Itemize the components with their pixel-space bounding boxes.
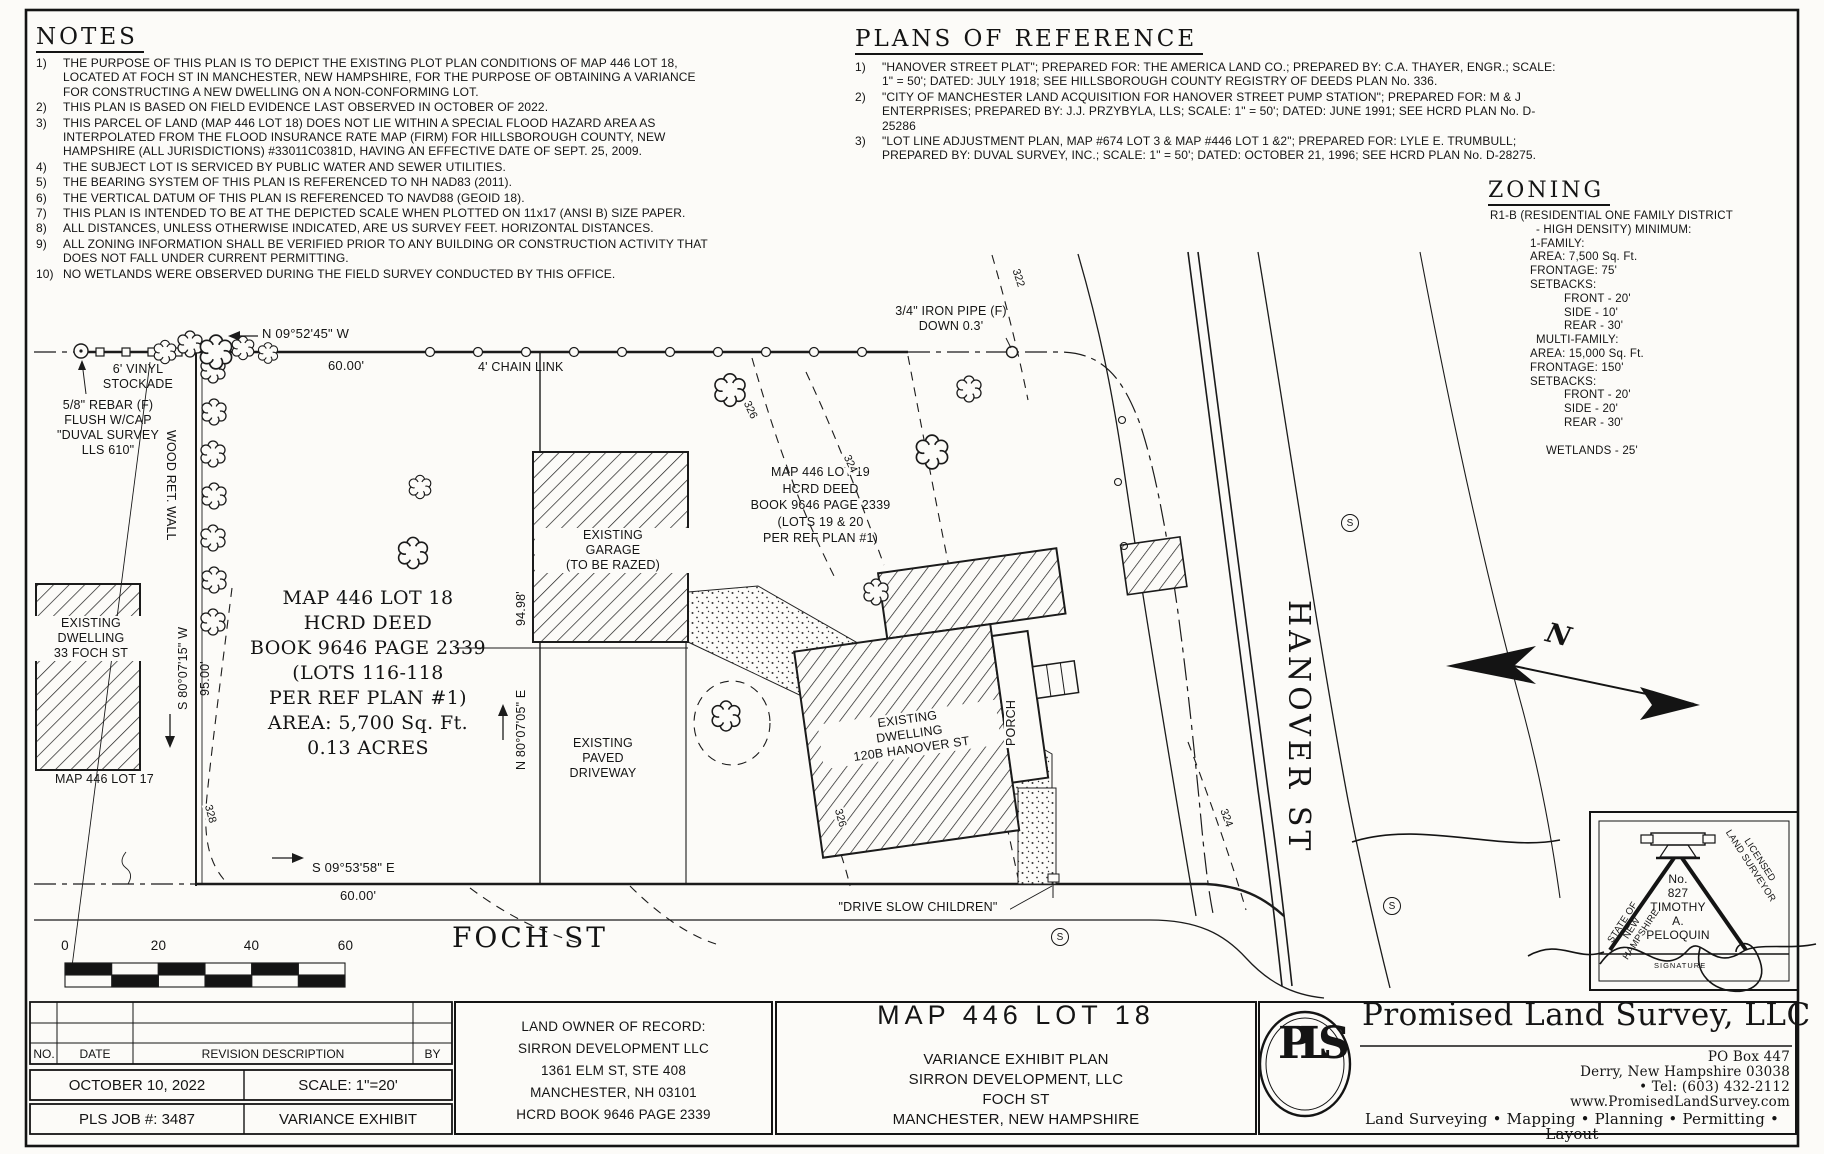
bearing-top-label: N 09°52'45" W — [262, 326, 349, 341]
notes-heading: NOTES — [36, 24, 144, 53]
zoning-wetlands: WETLANDS - 25' — [1546, 445, 1820, 459]
plan-scale: SCALE: 1"=20' — [244, 1077, 452, 1094]
distance-right-label: 94.98' — [514, 589, 529, 628]
lot18-label: MAP 446 LOT 18 HCRD DEED BOOK 9646 PAGE … — [243, 586, 493, 761]
bearing-right-label: N 80°07'05" E — [514, 688, 529, 772]
note-item: 8)ALL DISTANCES, UNLESS OTHERWISE INDICA… — [36, 221, 712, 235]
distance-left-label: 95.00' — [198, 661, 213, 696]
zoning-line: SIDE - 10' — [1564, 307, 1820, 321]
note-item: 7)THIS PLAN IS INTENDED TO BE AT THE DEP… — [36, 206, 712, 220]
zoning-list: R1-B (RESIDENTIAL ONE FAMILY DISTRICT - … — [1490, 210, 1820, 459]
revision-col-no: NO. — [31, 1047, 57, 1061]
lot17-label: MAP 446 LOT 17 — [55, 772, 154, 787]
scale-tick: 20 — [146, 938, 171, 953]
plans-of-reference-list: 1)"HANOVER STREET PLAT"; PREPARED FOR: T… — [855, 60, 1557, 164]
bearing-bottom-label: S 09°53'58" E — [310, 860, 397, 875]
zoning-line: R1-B (RESIDENTIAL ONE FAMILY DISTRICT — [1490, 210, 1820, 224]
plan-type: VARIANCE EXHIBIT — [244, 1111, 452, 1128]
note-item: 3)THIS PARCEL OF LAND (MAP 446 LOT 18) D… — [36, 116, 712, 159]
zoning-heading: ZONING — [1488, 178, 1610, 206]
garage-label: EXISTING GARAGE (TO BE RAZED) — [535, 528, 691, 573]
revision-col-description: REVISION DESCRIPTION — [133, 1047, 413, 1061]
note-item: 1)THE PURPOSE OF THIS PLAN IS TO DEPICT … — [36, 56, 712, 99]
chain-link-label: 4' CHAIN LINK — [478, 360, 564, 375]
zoning-line: FRONTAGE: 150' — [1530, 362, 1820, 376]
zoning-line: - HIGH DENSITY) MINIMUM: — [1536, 224, 1820, 238]
hanover-st-label: HANOVER ST — [1289, 592, 1308, 862]
survey-sheet: NOTES 1)THE PURPOSE OF THIS PLAN IS TO D… — [0, 0, 1824, 1154]
note-item: 5)THE BEARING SYSTEM OF THIS PLAN IS REF… — [36, 175, 712, 189]
distance-top-label: 60.00' — [328, 358, 364, 373]
land-owner-block: LAND OWNER OF RECORD: SIRRON DEVELOPMENT… — [455, 1016, 772, 1126]
plans-of-reference-heading: PLANS OF REFERENCE — [855, 26, 1203, 55]
dwelling33-label: EXISTING DWELLING 33 FOCH ST — [30, 616, 152, 661]
note-item: 2)THIS PLAN IS BASED ON FIELD EVIDENCE L… — [36, 100, 712, 114]
plan-subtitle: VARIANCE EXHIBIT PLAN SIRRON DEVELOPMENT… — [776, 1050, 1256, 1130]
zoning-line: MULTI-FAMILY: — [1536, 334, 1820, 348]
zoning-line: REAR - 30' — [1564, 320, 1820, 334]
firm-name: Promised Land Survey, LLC — [1362, 1008, 1811, 1023]
vinyl-stockade-label: 6' VINYL STOCKADE — [92, 362, 184, 392]
scale-tick: 40 — [239, 938, 264, 953]
zoning-line: REAR - 30' — [1564, 417, 1820, 431]
revision-col-date: DATE — [57, 1047, 133, 1061]
plan-title: MAP 446 LOT 18 — [776, 1008, 1256, 1023]
wood-wall-label: WOOD RET. WALL — [163, 430, 178, 541]
firm-logo: PLS — [1278, 1036, 1338, 1051]
sewer-manhole-icon: S — [1051, 928, 1069, 946]
plan-date: OCTOBER 10, 2022 — [30, 1077, 244, 1094]
zoning-line: SETBACKS: — [1530, 376, 1820, 390]
reference-item: 3)"LOT LINE ADJUSTMENT PLAN, MAP #674 LO… — [855, 134, 1557, 163]
note-item: 9)ALL ZONING INFORMATION SHALL BE VERIFI… — [36, 237, 712, 266]
scale-tick: 60 — [333, 938, 358, 953]
zoning-line: FRONTAGE: 75' — [1530, 265, 1820, 279]
distance-bottom-label: 60.00' — [338, 888, 378, 903]
iron-pipe-label: 3/4" IRON PIPE (F) DOWN 0.3' — [884, 304, 1018, 334]
foch-st-label: FOCH ST — [452, 930, 608, 945]
zoning-line: FRONT - 20' — [1564, 389, 1820, 403]
pls-job-number: PLS JOB #: 3487 — [30, 1111, 244, 1128]
note-item: 6)THE VERTICAL DATUM OF THIS PLAN IS REF… — [36, 191, 712, 205]
zoning-line: AREA: 7,500 Sq. Ft. — [1530, 251, 1820, 265]
north-arrow-label: N — [1545, 625, 1573, 646]
lot19-label: MAP 446 LOT 19 HCRD DEED BOOK 9646 PAGE … — [733, 464, 908, 547]
notes-list: 1)THE PURPOSE OF THIS PLAN IS TO DEPICT … — [36, 56, 712, 282]
reference-item: 2)"CITY OF MANCHESTER LAND ACQUISITION F… — [855, 90, 1557, 133]
zoning-line: AREA: 15,000 Sq. Ft. — [1530, 348, 1820, 362]
note-item: 4)THE SUBJECT LOT IS SERVICED BY PUBLIC … — [36, 160, 712, 174]
sewer-manhole-icon: S — [1383, 897, 1401, 915]
driveway-label: EXISTING PAVED DRIVEWAY — [545, 736, 661, 781]
stamp-signature-label: SIGNATURE — [1654, 958, 1706, 973]
drive-slow-sign-label: "DRIVE SLOW CHILDREN" — [826, 900, 1010, 915]
zoning-line: 1-FAMILY: — [1530, 238, 1820, 252]
rebar-label: 5/8" REBAR (F) FLUSH W/CAP "DUVAL SURVEY… — [40, 398, 176, 458]
bearing-left-label: S 80°07'15" W — [176, 627, 191, 710]
firm-address: PO Box 447 Derry, New Hampshire 03038 • … — [1460, 1050, 1790, 1110]
reference-item: 1)"HANOVER STREET PLAT"; PREPARED FOR: T… — [855, 60, 1557, 89]
scale-tick: 0 — [55, 938, 75, 953]
zoning-line: SETBACKS: — [1530, 279, 1820, 293]
sewer-manhole-icon: S — [1341, 514, 1359, 532]
firm-services: Land Surveying • Mapping • Planning • Pe… — [1352, 1112, 1792, 1142]
zoning-line: FRONT - 20' — [1564, 293, 1820, 307]
zoning-line: SIDE - 20' — [1564, 403, 1820, 417]
stamp-surveyor-name: No. 827 TIMOTHY A. PELOQUIN — [1634, 872, 1722, 942]
note-item: 10)NO WETLANDS WERE OBSERVED DURING THE … — [36, 267, 712, 281]
revision-col-by: BY — [413, 1047, 452, 1061]
porch-label: PORCH — [1004, 698, 1019, 748]
